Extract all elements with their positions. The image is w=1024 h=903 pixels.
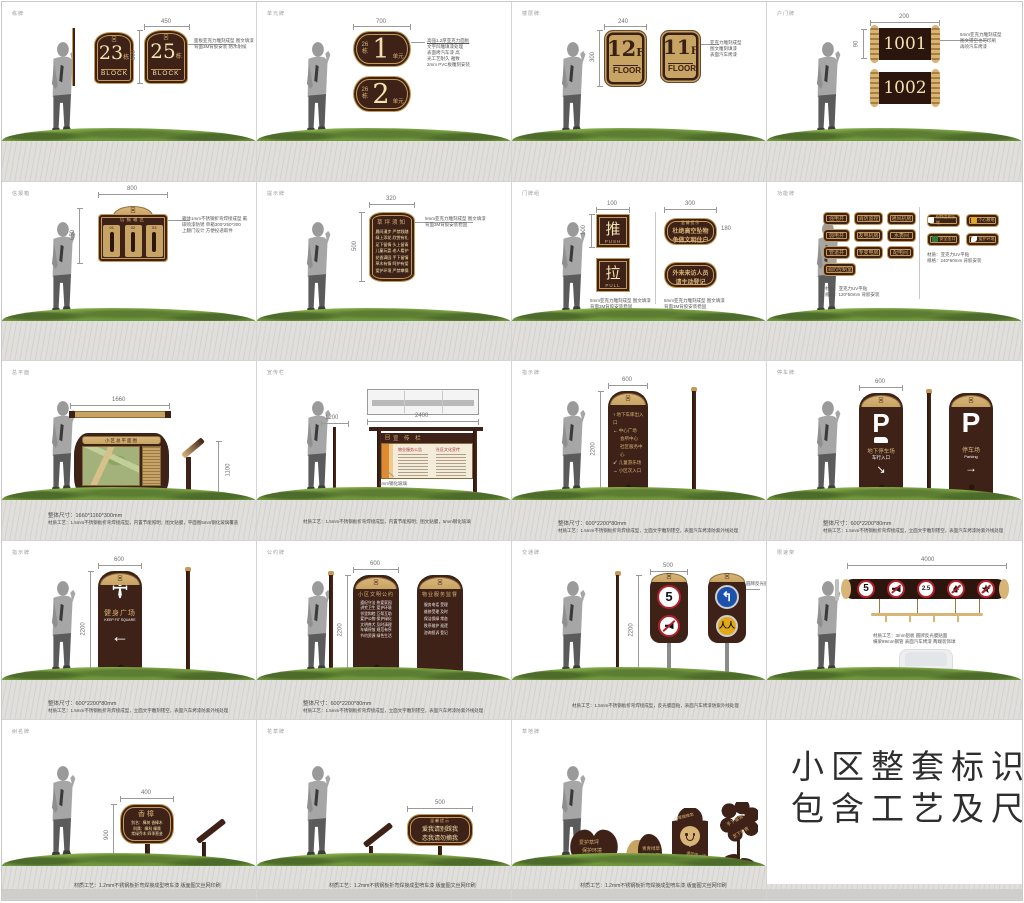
totem-title: 小区文明公约 [353, 591, 399, 598]
annotation-text: 高强1.2厚亚克力面板文字凹雕填漆处理表面烤汽车漆 高光工艺耐久 雅致2mm P… [427, 38, 470, 68]
caption-text: 材质：亚克力UV平贴规格：240*60mm 背胶安装 [927, 252, 982, 264]
function-plate: 配电间 [887, 246, 914, 259]
pull-sign: 拉 PULL [596, 258, 630, 292]
function-plate: 专变电房 [854, 246, 883, 259]
no-littering-sign [947, 580, 965, 598]
door-plaque-1001: 1001 [870, 28, 940, 60]
parking-loc: 停车场 [949, 445, 993, 454]
flowerbed-plaque: 温馨提示 爱我请别踩我 恋我请勿摘我 [407, 814, 473, 846]
panel-mailbox: 信报箱 800 650 回 信报箱区 01 02 03 [2, 182, 257, 362]
annotation-text: 材质工艺：3mm铝板 圆牌反光膜贴面横梁89mm钢管 表面汽车烤漆 两端装饰球 [873, 633, 956, 645]
door-number: 1002 [879, 72, 931, 104]
poster-heading: 物业服务公告 [398, 447, 422, 453]
dimension-line: 600 [98, 565, 142, 566]
notice-sign: 草坪须知 晨间漫步 严禁践踏 绿上添花 欣赏有礼 足下留情 头上留青 儿童玩耍 … [369, 212, 415, 282]
caption-text: 整体尺寸：1660*1160*300mm [48, 511, 122, 519]
pull-word: PULL [597, 283, 629, 288]
caption-text: 材质工艺：1.5mm不锈钢板折弯焊接成型，立面文字雕刻镂空，表面汽车烤漆防紫外线… [303, 708, 483, 714]
item-code-label: 户门牌 [777, 10, 795, 17]
person-silhouette-icon [803, 395, 847, 501]
ground-strip [257, 321, 511, 361]
speed-limit-sign: 5 [857, 580, 875, 598]
tree-plaque: 香樟 别名：樟树 香樟木 科属：樟科 樟属 常绿乔木 四季葱茏 [120, 804, 174, 844]
dimension-line: 800 [98, 194, 168, 195]
panel-tree-sign: 树名牌 400 900 香樟 别名：樟树 香樟木 科属：樟科 樟属 常绿乔木 四… [2, 720, 257, 900]
warning-plate: 小心触电 [966, 214, 999, 227]
panel-flowerbed-sign: 花草牌 500 温馨提示 爱我请别踩我 恋我请勿摘我 材质工艺：1.2mm不锈钢… [257, 720, 512, 900]
unit-number: 2 [372, 79, 389, 110]
service-row: 维修受理 及时 [424, 609, 463, 616]
mailbox-title: 信报箱区 [99, 217, 167, 223]
caption-text: 材质工艺：1.5mm不锈钢板折弯焊接成型，内置节能照明；图文贴膜，5mm钢化玻璃 [303, 519, 471, 525]
height-limit-sign: 2.5 [917, 580, 935, 598]
dimension-line: 600 [608, 385, 648, 386]
mailbox-slot: 03 [146, 225, 163, 257]
mailbox-slot: 02 [125, 225, 142, 257]
floor-number: 12 [607, 36, 636, 61]
item-code-label: 楼层牌 [522, 10, 540, 17]
unit-suffix: 单元 [393, 52, 404, 60]
panel-lawn-notice: 提示牌 320 500 草坪须知 晨间漫步 严禁践踏 绿上添花 欣赏有礼 足下留… [257, 182, 512, 362]
item-code-label: 提示牌 [267, 190, 285, 197]
notice-row: 儿童玩耍 老人看护 [370, 248, 414, 255]
notice-row: 绿上添花 欣赏有礼 [370, 235, 414, 242]
block-word: BLOCK [101, 69, 127, 77]
plaque-line: 爱我请别踩我 [408, 824, 472, 833]
mailbox-slot-label: 02 [125, 225, 142, 230]
dimension-line: 500 [361, 212, 362, 282]
caption-text: 材质工艺：1.5mm不锈钢板折弯焊接成型，立面文字雕刻镂空，表面汽车烤漆防紫外线… [823, 528, 1003, 534]
tree-info-line: 常绿乔木 四季葱茏 [121, 832, 173, 838]
divider-line [919, 207, 920, 299]
person-silhouette-icon [803, 36, 847, 142]
sheet-title-line2: 包含工艺及尺寸 [791, 788, 1022, 830]
caption-text: 材质工艺：1.2mm不锈钢板折弯焊接成型喷车漆 版面图文丝网印刷 [329, 882, 476, 889]
unit-sign-1: 26栋 1 单元 [353, 31, 411, 67]
panel-fitness-totem: 指示牌 600 2200 回 健身广场 KEEP FIT SQUARE ← 整体… [2, 541, 257, 721]
service-row: 秩序维护 巡逻 [424, 623, 463, 630]
floor-word: FLOOR [668, 63, 693, 73]
dimension-line: 4000 [847, 565, 1007, 566]
dimension-line: 650 [79, 208, 80, 264]
caption-text: 材质工艺：1.5mm不锈钢板折弯焊接成型，立面文字雕刻镂空，表面汽车烤漆防紫外线… [558, 528, 738, 534]
block-unit-char: 栋 [123, 55, 129, 61]
sign-side-view [72, 28, 75, 86]
exit-icon [932, 236, 938, 242]
turn-left-sign: ↰ [715, 585, 739, 609]
service-row: 服务电话 受理 [424, 602, 463, 609]
item-code-label: 草地牌 [522, 728, 540, 735]
board-top-view [367, 389, 479, 415]
ground-strip [767, 680, 1022, 720]
plaque-line: 恋我请勿摘我 [408, 833, 472, 842]
panel-push-pull-tips: 门牌组 100 100 推 PUSH 拉 PULL 5mm亚克力雕刻成型 图文填… [512, 182, 767, 362]
dimension-line: 450 [144, 26, 190, 27]
dimension-line: 90 [863, 29, 864, 59]
community-logo-icon: 回 [385, 436, 390, 441]
item-code-label: 公约牌 [267, 549, 285, 556]
person-silhouette-icon [548, 36, 592, 142]
item-code-label: 停车牌 [777, 369, 795, 376]
parking-loc: 地下停车场 [859, 447, 903, 455]
mailbox-slot-label: 01 [103, 225, 120, 230]
community-logo-icon: 回 [130, 209, 135, 214]
function-plate: 管道井 [823, 246, 850, 259]
push-word: PUSH [597, 239, 629, 244]
mailbox-slot-label: 03 [146, 225, 163, 230]
item-code-label: 单元牌 [267, 10, 285, 17]
item-code-label: 功能牌 [777, 190, 795, 197]
ground-strip [767, 884, 1022, 899]
mail-slot-opening [152, 232, 156, 252]
door-number: 1001 [879, 28, 931, 60]
person-silhouette-icon [548, 395, 592, 501]
floor-f: F [636, 46, 644, 59]
person-silhouette-icon [293, 395, 337, 501]
block-plaque-23: 回 23栋 BLOCK [94, 32, 134, 84]
tip-sign-2: 外来来访人员 请主动登记 [664, 262, 717, 288]
tip-line: 请主动登记 [665, 277, 716, 286]
community-logo-icon: 回 [878, 399, 883, 404]
floor-f: F [691, 46, 698, 57]
ornament-text: 爱护草坪 [579, 839, 599, 846]
speed-limit-sign: 5 [657, 585, 681, 609]
function-plate: 消防监控 [854, 212, 883, 225]
item-code-label: 信报箱 [12, 190, 30, 197]
beam-end-cap [841, 579, 851, 599]
tip-line: 争做文明住户 [665, 235, 716, 244]
function-plate: 发电机房 [854, 229, 883, 242]
leader-line [746, 589, 760, 590]
door-plaque-1002: 1002 [870, 72, 940, 104]
panel-bulletin-board: 宣传栏 2400 1200 回 宣 传 栏 物业服务公告 社区文化宣传 5mm钢… [257, 361, 512, 541]
arrow: → [949, 461, 993, 475]
car-icon [874, 437, 888, 443]
no-horn-sign [887, 580, 905, 598]
dimension-line: 500 [650, 571, 688, 572]
mailbox-slot: 01 [103, 225, 120, 257]
caption-text: 材质工艺：1.2mm不锈钢板折弯焊接成型喷车漆 版面图文丝网印刷 [74, 882, 221, 889]
item-code-label: 宣传栏 [267, 369, 285, 376]
pull-char: 拉 [597, 262, 629, 283]
mail-slot-opening [131, 232, 135, 252]
tilted-sign-side-view [363, 823, 393, 849]
speed-horn-sign: 回 5 [650, 577, 688, 643]
person-silhouette-icon [38, 36, 82, 142]
block-number: 25 [150, 39, 175, 63]
block-label: 26栋 [360, 42, 369, 56]
caption-text: 材质工艺：1.5mm不锈钢板折弯焊接成型，反光膜面贴，表面汽车烤漆防紫外线处理 [572, 703, 739, 709]
warning-plate: 视频监控区域 [927, 214, 960, 227]
scroll-ornament [870, 25, 879, 63]
dimension-line: 100 [596, 209, 630, 210]
item-code-label: 交通牌 [522, 549, 540, 556]
function-plate: 强电井 [823, 212, 850, 225]
item-code-label: 指示牌 [12, 549, 30, 556]
item-code-label: 门牌组 [522, 190, 540, 197]
map-title: 小区总平面图 [105, 438, 138, 444]
notice-row: 草木有情 呵护有爱 [370, 261, 414, 268]
ground-strip [2, 321, 256, 361]
caption-text: 整体尺寸：600*2200*80mm [48, 699, 116, 707]
ground-strip [512, 141, 766, 181]
person-silhouette-icon [293, 216, 337, 322]
caption-text: 材质工艺：1.5mm不锈钢板折弯焊接成型，内置节能照明；图文贴膜，平面图5mm钢… [48, 520, 238, 526]
community-logo-icon: 回 [968, 399, 973, 404]
unit-number: 1 [372, 34, 389, 65]
totem-title: 物业服务监督 [417, 591, 463, 598]
community-logo-icon: 回 [117, 577, 122, 582]
annotation-text: 5mm亚克力雕刻成型图文镂空也可印刷再喷汽车烤漆 [960, 32, 1002, 50]
item-code-label: 花草牌 [267, 728, 285, 735]
panel-door-numbers: 户门牌 200 90 1001 5mm亚克力雕刻成型图文镂空也可印刷再喷汽车烤漆… [767, 2, 1022, 182]
direction-row: → 小区次入口 [613, 467, 645, 475]
rule-row: 节约资源 绿色生活 [353, 634, 399, 640]
beam-end-cap [999, 579, 1009, 599]
caption-text: 材质工艺：1.2mm不锈钢板折弯焊接成型喷车漆 版面图文丝网印刷 [580, 882, 727, 889]
no-horn-sign [658, 615, 680, 637]
dimension-line: 600 [353, 569, 399, 570]
panel-gantry-beam: 限速架 4000 5 2.5 材质工艺：3mm铝板 圆牌反光膜贴面横梁89mm钢… [767, 541, 1022, 721]
block-plaque-25: 回 25栋 BLOCK [144, 30, 188, 84]
caption-text: 材质工艺：1.5mm不锈钢板折弯焊接成型，立面文字雕刻镂空，表面汽车烤漆防紫外线… [48, 708, 228, 714]
warning-plate: 安全出口 [927, 233, 960, 246]
beam: 5 2.5 [843, 579, 1007, 599]
function-plate: 水表间 [887, 229, 916, 242]
design-sheet: 栋牌 回 23栋 BLOCK 450 600 回 25栋 BLOCK 面板亚克力… [1, 1, 1023, 901]
caption-text: 材质：亚克力UV平贴规格：120*50mm 背胶安装 [825, 286, 880, 298]
board-title: 宣 传 栏 [393, 434, 423, 442]
function-plate: 弱电井 [823, 229, 850, 242]
map-legend-list [142, 446, 161, 486]
lectern-head [181, 438, 205, 459]
block-label: 26栋 [360, 87, 369, 101]
dimension-line: 240 [604, 26, 647, 27]
annotation-text: 圆牌反光膜贴面 [746, 581, 767, 587]
dimension-line: 600 [139, 30, 140, 84]
poster-heading: 社区文化宣传 [436, 447, 460, 453]
parking-p: P [859, 409, 903, 437]
panel-function-plates: 功能牌 强电井 消防监控 通风机房 弱电井 发电机房 水表间 管道井 专变电房 … [767, 182, 1022, 362]
direction-row: ← 中心广场 [613, 427, 645, 435]
dimension-line: 100 [591, 214, 592, 248]
block-unit-char: 栋 [176, 54, 182, 60]
notice-title: 草坪须知 [370, 218, 414, 226]
dimension-line: 320 [369, 204, 415, 205]
mailbox-body: 信报箱区 01 02 03 [98, 214, 168, 262]
ground-strip [767, 141, 1022, 181]
dimension-line: 200 [870, 22, 940, 23]
service-row: 保洁保绿 常态 [424, 616, 463, 623]
annotation-text: 亚克力雕刻成型图文雕刻填漆表面汽车烤漆 [710, 40, 742, 58]
arrow: ← [98, 626, 142, 646]
person-silhouette-icon [38, 760, 82, 866]
poster-area: 物业服务公告 社区文化宣传 [381, 443, 473, 479]
hanging-rail [871, 599, 983, 625]
ground-strip [512, 321, 766, 361]
panel-convention-totems: 公约牌 600 2200 回 小区文明公约 遵纪守法 热爱家园 讲究卫生 爱护环… [257, 541, 512, 721]
direction-row: ↙ 儿童游乐场 [613, 459, 645, 467]
community-logo-icon: 回 [724, 575, 729, 580]
unit-suffix: 单元 [393, 97, 404, 105]
dimension-line: 300 [599, 30, 600, 87]
warning-plate: 爱护环境 [966, 233, 999, 246]
person-silhouette-icon [293, 760, 337, 866]
scroll-ornament [870, 69, 879, 107]
scroll-ornament [931, 69, 940, 107]
annotation-text: 5mm亚克力雕刻成型 图文填漆背面3M背胶安装稳固 [664, 298, 725, 310]
item-code-label: 指示牌 [522, 369, 540, 376]
electric-icon [971, 217, 977, 223]
tip-sign-1: 温馨提示 杜绝高空坠物 争做文明住户 [664, 218, 717, 245]
community-logo-icon: 回 [666, 575, 671, 580]
push-sign: 推 PUSH [596, 214, 630, 248]
unit-sign-2: 26栋 2 单元 [353, 76, 411, 112]
community-logo-icon: 回 [625, 397, 630, 402]
site-map-graphic [82, 446, 140, 486]
caption-text: 整体尺寸：600*2200*80mm [558, 519, 626, 527]
direction-row: 会所中心 [613, 435, 645, 443]
dimension-line: 1660 [70, 405, 170, 406]
panel-floor-signs: 楼层牌 240 300 12F FLOOR 11F FLOOR 亚克力雕刻成型图… [512, 2, 767, 182]
dimension-line: 1100 [218, 441, 219, 499]
item-code-label: 树名牌 [12, 728, 30, 735]
ground-strip [257, 141, 511, 181]
push-char: 推 [597, 218, 629, 239]
panel-parking-totems: 停车牌 600 回 P 地下停车场 车行入口 ↘ 回 P 停车场 Parking… [767, 361, 1022, 541]
annotation-text: 箱体1mm不锈钢折弯焊接成型 氟碳喷漆防锈 单箱300*250*300上翻门设计… [182, 216, 247, 234]
panel-headline: 小区整套标识 包含工艺及尺寸 [767, 720, 1022, 900]
leader-line [411, 42, 425, 43]
block-number: 23 [99, 42, 123, 64]
person-silhouette-icon [548, 575, 592, 681]
board-beam [369, 427, 483, 431]
dimension-line: 2400 [367, 421, 479, 422]
ground-strip [512, 680, 766, 720]
panel-unit-signs: 单元牌 700 26栋 1 单元 高强1.2厚亚克力面板文字凹雕填漆处理表面烤汽… [257, 2, 512, 182]
person-silhouette-icon [38, 575, 82, 681]
dimension-line: 300 [664, 209, 717, 210]
caption-text: 整体尺寸：600*2200*80mm [303, 699, 371, 707]
notice-row: 爱护环境 严禁攀摘 [370, 268, 414, 275]
floor-number: 11 [663, 35, 691, 59]
community-logo-icon: 回 [373, 581, 378, 586]
turn-children-sign: 回 ↰ 人人 [708, 577, 746, 643]
arrow: ↘ [859, 463, 903, 476]
ground-strip [2, 141, 256, 181]
direction-row: 社区服务中心 [613, 443, 645, 459]
annotation-text: 面板亚克力雕刻成型 图文填漆背面3M背胶安装 防水耐候 [194, 38, 254, 50]
annotation-text: 5mm亚克力雕刻成型 图文填漆背面3M背胶安装稳固 [425, 216, 486, 228]
ornament-text: 青青绿草 [642, 846, 660, 852]
person-silhouette-icon [293, 36, 337, 142]
tilted-sign-side-view [196, 819, 226, 845]
wall-bracket [835, 579, 839, 601]
item-code-label: 限速架 [777, 549, 795, 556]
scroll-ornament [931, 25, 940, 63]
function-plate: 通风机房 [887, 212, 916, 225]
service-row: 咨询投诉 登记 [424, 630, 463, 637]
no-fireworks-sign [977, 580, 995, 598]
totem-title: 健身广场 [98, 608, 142, 618]
tip-line: 外来来访人员 [665, 268, 716, 277]
dimension-line: 1200 [321, 423, 349, 424]
community-logo-icon: 回 [437, 581, 442, 586]
panel-wayfinding-totem: 指示牌 600 2200 回 ↑ 地下车库出入口 ← 中心广场 会所中心 社区服… [512, 361, 767, 541]
parking-sub: Parking [949, 454, 993, 459]
watch-children-sign: 人人 [716, 615, 738, 637]
dimension-line: 600 [859, 387, 903, 388]
totem-subtitle: KEEP FIT SQUARE [98, 618, 142, 622]
sheet-title-line1: 小区整套标识 [791, 746, 1022, 788]
caption-text: 整体尺寸：600*2200*80mm [823, 519, 891, 527]
floor-sign-12: 12F FLOOR [604, 30, 647, 87]
dimension-line: 400 [120, 798, 174, 799]
parking-sub: 车行入口 [859, 455, 903, 461]
block-word: BLOCK [151, 69, 181, 77]
divider-line [655, 212, 656, 304]
panel-block-plaques: 栋牌 回 23栋 BLOCK 450 600 回 25栋 BLOCK 面板亚克力… [2, 2, 257, 182]
leaf-icon [971, 236, 977, 242]
tree-name: 香樟 [121, 809, 173, 819]
dimension-line: 700 [353, 26, 411, 27]
ground-strip [767, 321, 1022, 361]
board-header: 回 宣 传 栏 [381, 433, 473, 443]
panel-lawn-ornaments: 草地牌 爱护草坪 保护环境 青青绿草 踏之何忍 小草微微笑 请您绕一绕 [512, 720, 767, 900]
panel-site-map: 总平面 1660 小区总平面图 回 1100 整体尺寸：1660*1160*30… [2, 361, 257, 541]
dimension-label: 180 [721, 226, 731, 232]
item-code-label: 总平面 [12, 369, 30, 376]
floor-word: FLOOR [613, 65, 638, 75]
floor-sign-11: 11F FLOOR [660, 30, 701, 83]
parking-p: P [949, 407, 993, 439]
direction-row: ↑ 地下车库出入口 [613, 411, 645, 427]
function-plate: 消防控制室 [823, 263, 856, 276]
tip-line: 杜绝高空坠物 [665, 226, 716, 235]
dimension-line: 500 [407, 808, 473, 809]
map-board-top-view [70, 411, 170, 418]
camera-icon [928, 217, 934, 223]
item-code-label: 栋牌 [12, 10, 24, 17]
panel-traffic-signs: 交通牌 2200 500 回 5 回 ↰ 人人 圆牌反光膜贴面 材质工艺：1.5… [512, 541, 767, 721]
mail-slot-opening [110, 232, 114, 252]
